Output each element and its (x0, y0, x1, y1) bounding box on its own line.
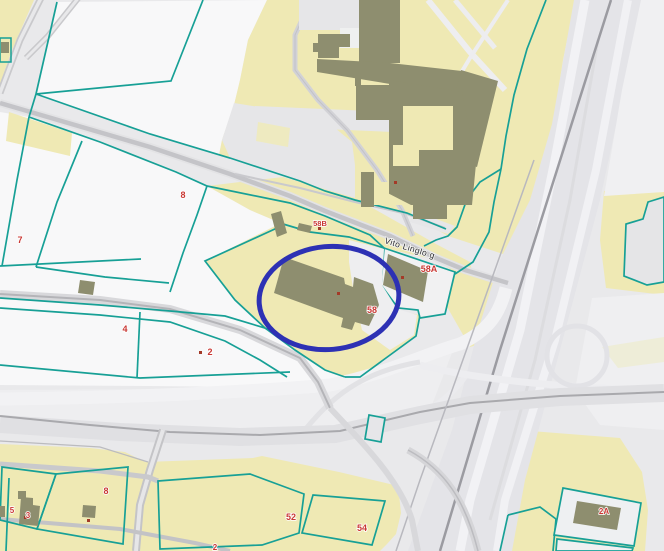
svg-text:3: 3 (26, 511, 31, 520)
svg-text:4: 4 (122, 324, 127, 334)
svg-text:58: 58 (367, 305, 377, 315)
svg-text:58B: 58B (313, 219, 327, 228)
svg-text:2: 2 (207, 347, 212, 357)
svg-text:52: 52 (286, 512, 296, 522)
svg-text:54: 54 (357, 523, 367, 533)
svg-text:58A: 58A (421, 264, 438, 274)
svg-text:8: 8 (103, 486, 108, 496)
svg-text:2A: 2A (599, 507, 609, 516)
svg-text:5: 5 (10, 506, 15, 515)
svg-text:2: 2 (213, 543, 218, 551)
svg-text:7: 7 (17, 235, 22, 245)
svg-text:8: 8 (180, 190, 185, 200)
